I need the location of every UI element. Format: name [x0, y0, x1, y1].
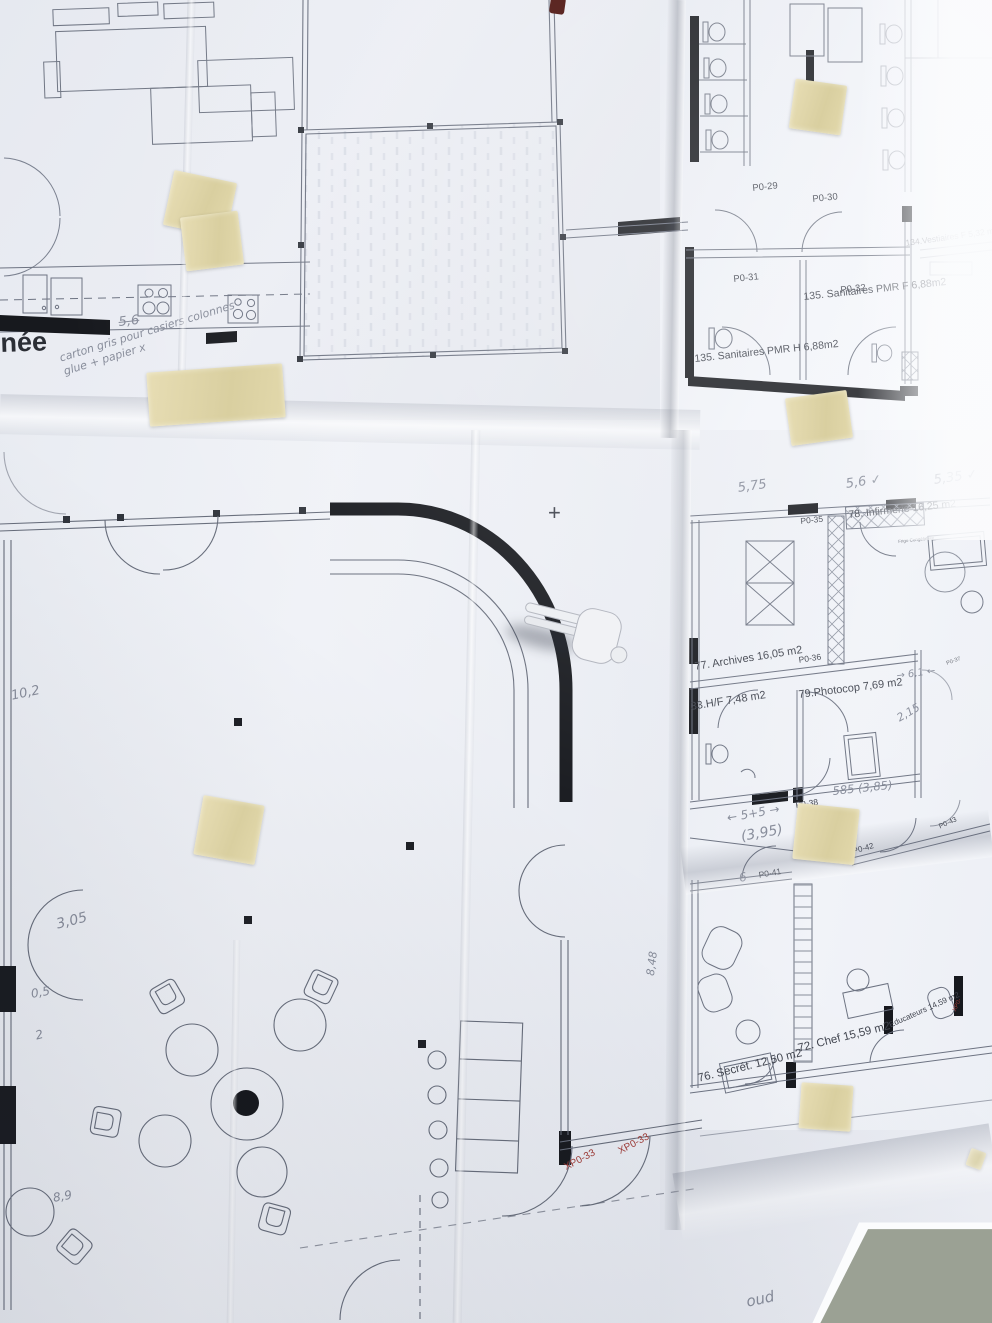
- door-code-p0-29: P0-29: [752, 181, 778, 193]
- tape-left-seam: [146, 363, 285, 426]
- sheet1-desks: [42, 0, 296, 148]
- sheet1-title-fragment: née: [0, 328, 47, 357]
- tape-top-right: [789, 79, 847, 136]
- tape-right-middle: [792, 803, 860, 865]
- tape-right-seam: [785, 390, 853, 446]
- registration-plus-mark: +: [548, 502, 561, 524]
- wall-hook: [512, 596, 642, 676]
- tape-top-left-b: [180, 211, 244, 272]
- handwriting-8-9: 8,9: [52, 1189, 73, 1204]
- handwriting-6: 6: [738, 871, 748, 884]
- door-code-p0-35: P0-35: [800, 515, 823, 526]
- handwriting-8-48: 8,48: [645, 951, 659, 977]
- tape-bottom-right: [798, 1082, 853, 1132]
- handwriting-0-5: 0,5: [30, 985, 51, 1000]
- photo-of-floorplans: née P0-29 P0-30 P0-31 P0-32 134.Vestiair…: [0, 0, 992, 1323]
- sheet3-drawing: [0, 452, 702, 1323]
- door-code-p0-30: P0-30: [812, 192, 838, 204]
- red-tape-mark-top: [549, 0, 566, 15]
- sheet1-doors: [4, 158, 60, 276]
- door-code-p0-31: P0-31: [733, 272, 759, 284]
- handwriting-5-75: 5,75: [737, 478, 767, 495]
- sheet1-tiled-room: [297, 0, 568, 362]
- handwriting-5-6: 5,6: [118, 314, 140, 329]
- tape-left-middle: [193, 795, 264, 865]
